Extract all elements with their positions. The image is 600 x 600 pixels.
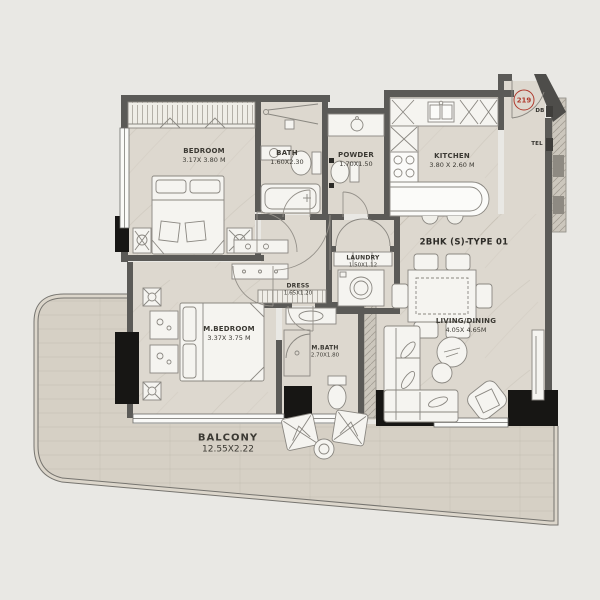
dress-wardrobe bbox=[258, 290, 326, 303]
kitchen-counter-left bbox=[390, 126, 418, 182]
bedroom-nightstand-left bbox=[133, 228, 151, 253]
tel-label: TEL bbox=[531, 141, 543, 147]
laundry-counter bbox=[334, 252, 392, 266]
unit-number-badge: 219 bbox=[514, 90, 535, 111]
master-bed bbox=[180, 303, 264, 381]
balcony-side-table bbox=[314, 439, 334, 459]
balcony-chair-right bbox=[332, 410, 369, 447]
master-nightstand-bottom bbox=[150, 345, 178, 373]
hall-console bbox=[234, 240, 288, 253]
master-nightstand-top bbox=[150, 311, 178, 339]
floor-plan-drawing bbox=[0, 0, 600, 600]
balcony-chair-left bbox=[281, 413, 319, 451]
washing-machine-icon bbox=[338, 270, 384, 306]
master-bedroom-slider bbox=[133, 414, 284, 423]
bedroom-window bbox=[120, 128, 129, 228]
bedroom-wardrobe bbox=[128, 102, 255, 128]
floor-plan-page: BEDROOM 3.17X 3.80 M BATH 1.60X2.30 POWD… bbox=[0, 0, 600, 600]
master-bedroom-dresser bbox=[232, 264, 288, 279]
bath-toilet bbox=[291, 151, 321, 175]
tv-console bbox=[532, 330, 544, 400]
bedroom-bed bbox=[152, 176, 224, 254]
master-bath-toilet bbox=[328, 376, 346, 409]
light-fixture-icon-bottom bbox=[143, 382, 161, 400]
light-fixture-icon-top bbox=[143, 288, 161, 306]
bath-vanity bbox=[261, 146, 291, 160]
db-label: DB bbox=[535, 108, 544, 114]
stove-icon bbox=[390, 152, 418, 182]
kitchen-counter-top bbox=[390, 98, 498, 126]
powder-vanity bbox=[328, 114, 384, 136]
